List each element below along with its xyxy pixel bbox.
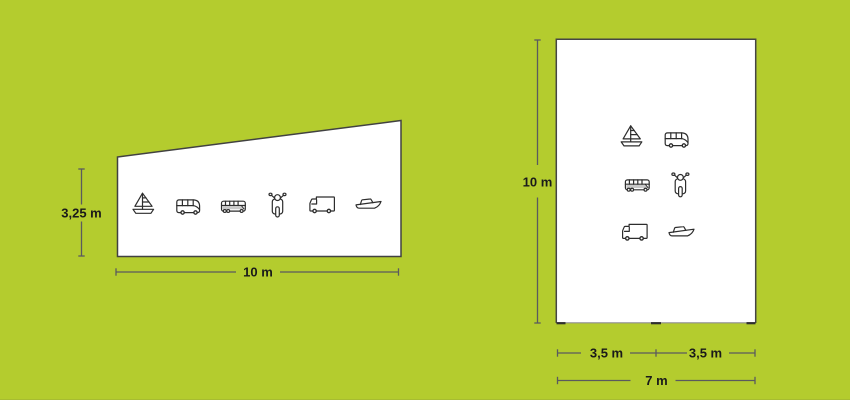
svg-text:10 m: 10 m	[243, 265, 273, 280]
svg-text:10 m: 10 m	[523, 175, 553, 190]
svg-text:7 m: 7 m	[645, 373, 667, 388]
svg-text:3,5 m: 3,5 m	[689, 346, 722, 361]
svg-text:3,5 m: 3,5 m	[590, 346, 623, 361]
svg-text:3,25 m: 3,25 m	[61, 206, 101, 221]
